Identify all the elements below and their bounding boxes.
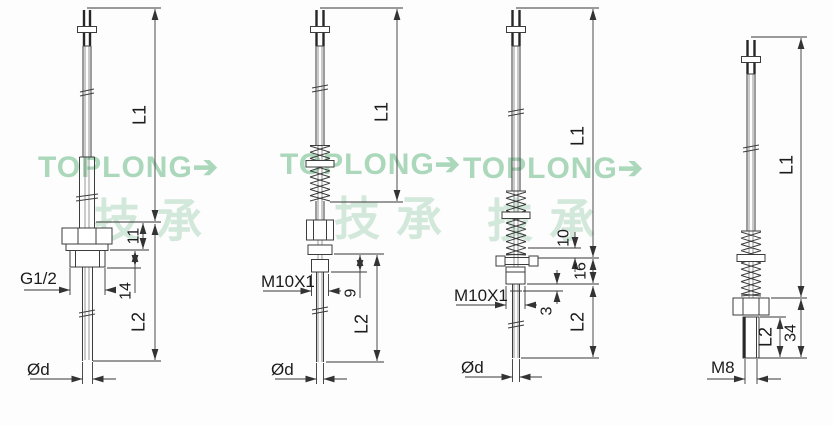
fig3-probe-tube	[508, 284, 524, 358]
fig1-label-diameter: Ød	[27, 360, 50, 379]
fig4-label-thread: M8	[711, 358, 735, 377]
fig2-lead-wires	[311, 10, 330, 46]
fig1-thread-bushing	[70, 251, 105, 268]
fig3-thread-nut	[506, 267, 525, 284]
fig4-wire-crimp	[742, 57, 761, 63]
fig2-spring	[310, 146, 330, 201]
fig2-label-diameter: Ød	[271, 360, 294, 379]
fig4-lead-wires	[742, 40, 761, 74]
figure-2-m10-spring-probe: L1 L2 9 M10X1 Ød	[261, 8, 403, 384]
fig4-label-tip-len: 34	[783, 324, 800, 342]
fig3-label-l1: L1	[567, 126, 587, 146]
fig2-spring-collar	[306, 161, 334, 168]
fig4-spring	[741, 232, 761, 296]
fig3-label-thread: M10X1	[454, 286, 508, 305]
fig2-washer	[308, 245, 332, 255]
fig2-wire-crimp	[311, 27, 330, 33]
figure-4-m8-probe: L1 L2 34 M8	[707, 37, 807, 384]
fig2-probe-body	[310, 46, 330, 362]
fig1-label-thread: G1/2	[20, 269, 57, 288]
fig3-spring-collar	[502, 212, 530, 219]
technical-drawing-canvas: TOPLONG➔ TOPLONG➔ TOPLONG➔ 技承 技承 技承	[0, 0, 833, 425]
fig4-dimensions: L1 L2 34 M8	[707, 37, 807, 384]
fig2-thread-nut	[312, 260, 329, 273]
fig3-flange	[496, 256, 538, 266]
fig3-lead-wires	[507, 10, 526, 46]
fig3-label-spring-offset: 10	[556, 229, 573, 247]
fig2-label-nut-len: 9	[343, 288, 360, 297]
fig3-label-flange-nut: 16	[573, 262, 590, 280]
fig3-label-clip-gap: 3	[539, 306, 556, 315]
fig1-washer	[66, 244, 108, 251]
figure-1-g12-probe: L1 L2 11 14 G1/2 Ød	[20, 8, 161, 384]
figure-3-m10-flange-probe: L1 L2 10 16 3 M10X1 Ød	[454, 8, 599, 382]
fig2-label-thread: M10X1	[261, 272, 315, 291]
fig3-dimensions: L1 L2 10 16 3 M10X1 Ød	[454, 8, 599, 382]
fig1-label-l2: L2	[128, 312, 148, 332]
fig1-wire-crimp	[78, 27, 97, 33]
fig4-hex-nut	[733, 298, 769, 315]
fig1-hex-nut	[62, 228, 112, 251]
fig1-label-thread-len: 14	[118, 282, 135, 300]
fig3-label-diameter: Ød	[461, 358, 484, 377]
fig3-wire-crimp	[507, 27, 526, 33]
fig2-hex-nut	[307, 201, 334, 272]
fig1-probe-tube	[79, 267, 95, 361]
fig3-spring	[506, 192, 526, 255]
fig4-label-l1: L1	[776, 155, 796, 175]
fig1-lead-wires	[78, 10, 97, 46]
fig3-probe-body	[506, 46, 526, 358]
fig2-label-l2: L2	[351, 314, 371, 334]
fig4-spring-collar	[737, 255, 765, 262]
fig2-dimensions: L1 L2 9 M10X1 Ød	[261, 8, 403, 384]
fig2-label-l1: L1	[371, 102, 391, 122]
fig1-label-hex-height: 11	[126, 228, 143, 245]
fig3-label-l2: L2	[567, 312, 587, 332]
fig1-label-l1: L1	[129, 105, 149, 125]
probe-drawings-svg: L1 L2 11 14 G1/2 Ød	[0, 0, 833, 425]
fig4-label-l2: L2	[755, 327, 775, 347]
